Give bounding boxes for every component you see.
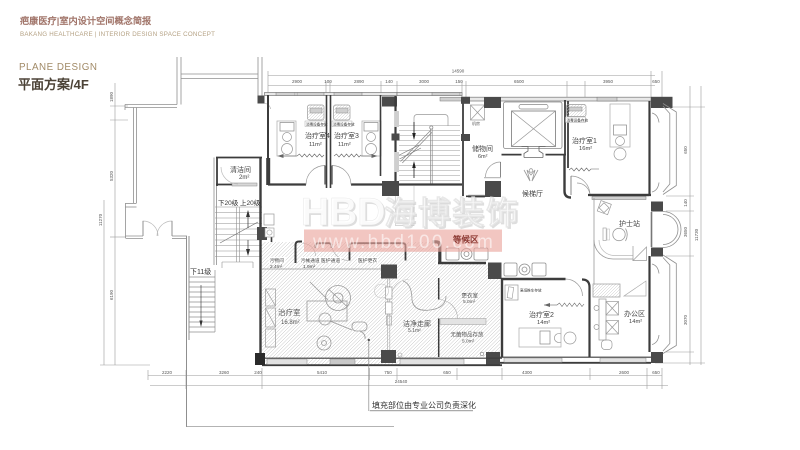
svg-text:填充部位由专业公司负责深化: 填充部位由专业公司负责深化 — [372, 400, 476, 410]
svg-text:平面方案/4F: 平面方案/4F — [18, 77, 89, 92]
svg-text:BAKANG HEALTHCARE | INTERIOR D: BAKANG HEALTHCARE | INTERIOR DESIGN SPAC… — [20, 31, 215, 38]
svg-text:650: 650 — [652, 370, 660, 375]
svg-text:机房: 机房 — [472, 120, 480, 126]
svg-text:下20级: 下20级 — [218, 198, 239, 207]
svg-text:上20级: 上20级 — [240, 198, 261, 207]
svg-text:11m²: 11m² — [338, 142, 351, 148]
svg-text:2220: 2220 — [162, 370, 173, 375]
svg-text:海博装饰: 海博装饰 — [384, 195, 520, 231]
svg-text:5320: 5320 — [109, 170, 114, 181]
svg-text:11m²: 11m² — [309, 142, 322, 148]
svg-text:消毒设备存放: 消毒设备存放 — [333, 122, 355, 127]
svg-text:240: 240 — [254, 370, 262, 375]
svg-text:高低推车存放: 高低推车存放 — [520, 288, 542, 293]
svg-text:14m²: 14m² — [629, 319, 642, 325]
svg-text:14m²: 14m² — [537, 320, 550, 326]
svg-text:14590: 14590 — [452, 69, 465, 74]
svg-text:1890: 1890 — [109, 91, 114, 102]
svg-text:1.9m²: 1.9m² — [303, 264, 316, 270]
svg-text:疤康医疗|室内设计空间概念简报: 疤康医疗|室内设计空间概念简报 — [20, 15, 152, 26]
svg-text:治疗室2: 治疗室2 — [529, 310, 554, 319]
svg-text:PLANE DESIGN: PLANE DESIGN — [19, 62, 97, 73]
svg-text:办公区: 办公区 — [624, 309, 645, 318]
svg-text:候梯厅: 候梯厅 — [522, 189, 543, 198]
svg-text:6190: 6190 — [109, 289, 114, 300]
svg-text:6m²: 6m² — [478, 154, 488, 160]
svg-text:3070: 3070 — [683, 314, 688, 325]
svg-text:3950: 3950 — [603, 79, 614, 84]
svg-text:无菌物品存放: 无菌物品存放 — [451, 331, 485, 339]
svg-text:2900: 2900 — [292, 79, 303, 84]
svg-text:2.4m²: 2.4m² — [270, 264, 283, 270]
svg-text:5.0m²: 5.0m² — [463, 299, 476, 305]
svg-text:医护更衣: 医护更衣 — [358, 257, 377, 264]
svg-text:清洁间: 清洁间 — [230, 165, 251, 174]
svg-text:等候区: 等候区 — [452, 235, 479, 245]
svg-text:150: 150 — [455, 79, 463, 84]
svg-text:3000: 3000 — [419, 79, 430, 84]
svg-text:11270: 11270 — [98, 213, 103, 226]
svg-text:2m²: 2m² — [239, 175, 249, 181]
svg-text:16.8m²: 16.8m² — [281, 320, 300, 326]
svg-text:储物间: 储物间 — [472, 144, 493, 153]
svg-text:污械通道: 污械通道 — [301, 257, 320, 264]
svg-text:650: 650 — [443, 370, 451, 375]
svg-text:3650: 3650 — [683, 226, 688, 237]
svg-text:洁净走廊: 洁净走廊 — [403, 319, 431, 328]
svg-text:治疗室3: 治疗室3 — [334, 131, 359, 140]
svg-text:消毒设备存放: 消毒设备存放 — [306, 122, 328, 127]
svg-text:140: 140 — [385, 79, 393, 84]
svg-text:下11级: 下11级 — [190, 267, 211, 276]
svg-text:治疗室: 治疗室 — [278, 307, 301, 317]
svg-text:HBD: HBD — [301, 191, 386, 234]
svg-text:140: 140 — [683, 199, 688, 207]
svg-text:3260: 3260 — [219, 370, 230, 375]
svg-text:消毒设备存放: 消毒设备存放 — [567, 118, 589, 123]
svg-text:2890: 2890 — [354, 79, 365, 84]
svg-text:4300: 4300 — [522, 370, 533, 375]
svg-text:治疗室1: 治疗室1 — [572, 136, 597, 145]
svg-text:2600: 2600 — [619, 370, 630, 375]
svg-text:100: 100 — [324, 79, 332, 84]
svg-text:5410: 5410 — [317, 370, 328, 375]
svg-text:污物间: 污物间 — [270, 257, 285, 264]
svg-text:11730: 11730 — [694, 228, 699, 241]
svg-text:6500: 6500 — [514, 79, 525, 84]
svg-text:650: 650 — [683, 146, 688, 154]
svg-text:24540: 24540 — [395, 379, 408, 384]
svg-text:更衣室: 更衣室 — [462, 292, 479, 300]
svg-text:护士站: 护士站 — [619, 219, 640, 228]
svg-text:750: 750 — [384, 370, 392, 375]
svg-text:5.1m²: 5.1m² — [408, 328, 421, 334]
svg-text:650: 650 — [652, 79, 660, 84]
svg-text:5.0m²: 5.0m² — [462, 339, 475, 345]
svg-text:16m²: 16m² — [579, 146, 592, 152]
svg-text:医护通道: 医护通道 — [321, 257, 340, 264]
